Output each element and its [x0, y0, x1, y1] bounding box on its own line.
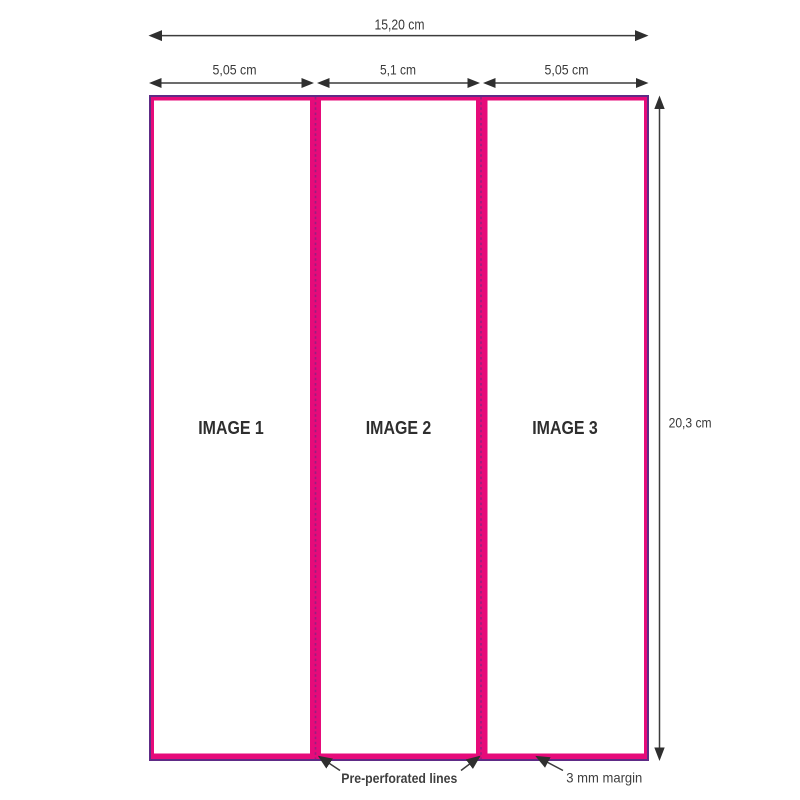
svg-text:20,3 cm: 20,3 cm [669, 415, 712, 431]
svg-text:5,1 cm: 5,1 cm [380, 61, 416, 77]
svg-text:IMAGE 2: IMAGE 2 [366, 417, 432, 438]
svg-text:Pre-perforated lines: Pre-perforated lines [341, 770, 457, 786]
svg-text:3 mm margin: 3 mm margin [566, 770, 642, 786]
svg-text:IMAGE 3: IMAGE 3 [532, 417, 598, 438]
svg-text:15,20 cm: 15,20 cm [375, 17, 425, 34]
svg-text:5,05 cm: 5,05 cm [213, 61, 257, 77]
svg-text:5,05 cm: 5,05 cm [545, 61, 589, 77]
svg-text:IMAGE 1: IMAGE 1 [198, 417, 264, 438]
